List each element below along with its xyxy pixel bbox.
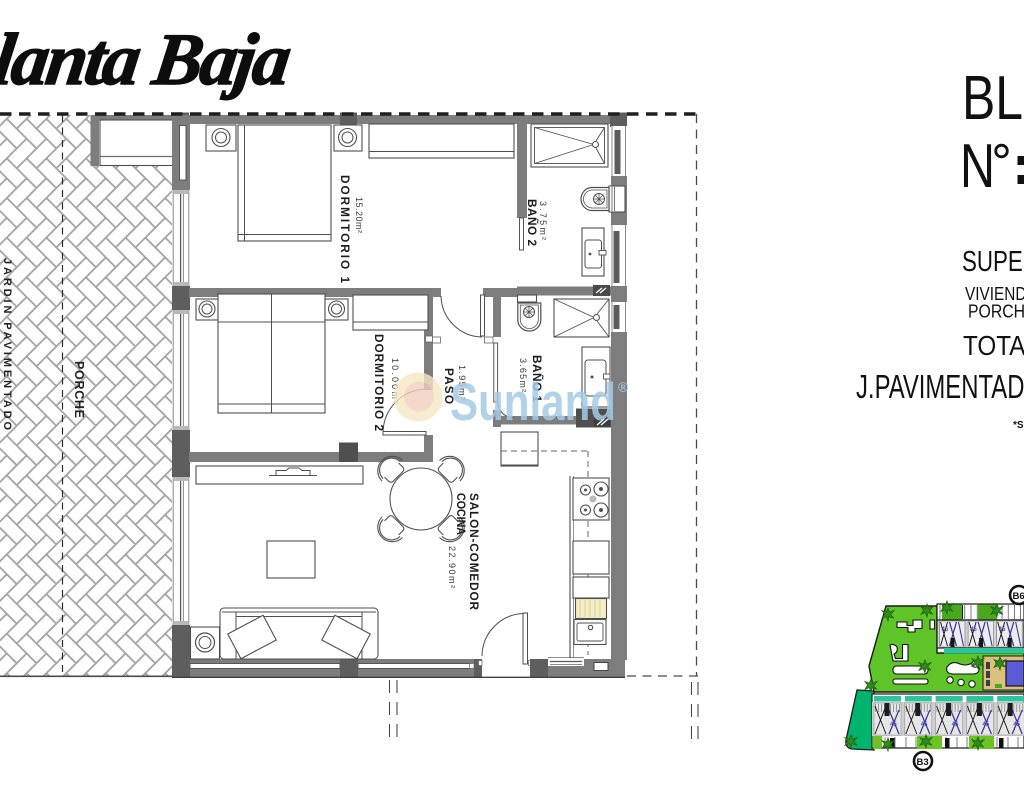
svg-text:B6: B6: [1013, 591, 1024, 602]
svg-text:22.90m²: 22.90m²: [447, 546, 457, 588]
svg-text:45: 45: [921, 722, 928, 728]
svg-text:J.PAVIMENTADO: J.PAVIMENTADO: [856, 368, 1024, 405]
svg-text:45: 45: [982, 722, 989, 728]
svg-text:45: 45: [952, 722, 959, 728]
svg-text:45: 45: [942, 627, 949, 633]
svg-text:45: 45: [970, 627, 977, 633]
svg-text:DORMITORIO 1: DORMITORIO 1: [338, 175, 352, 283]
svg-text:®: ®: [618, 379, 629, 395]
svg-text:COCINA: COCINA: [454, 493, 468, 535]
svg-text:JARDIN PAVIMENTADO: JARDIN PAVIMENTADO: [1, 258, 13, 430]
svg-text:SALON-COMEDOR: SALON-COMEDOR: [467, 493, 481, 610]
svg-text:15.20m²: 15.20m²: [354, 197, 364, 233]
svg-text:PORCHE: PORCHE: [72, 361, 86, 418]
svg-text:*S: *S: [1013, 420, 1024, 431]
svg-text:Sunland: Sunland: [450, 373, 616, 432]
svg-text:N: N: [960, 132, 995, 201]
svg-text:Planta Baja: Planta Baja: [0, 19, 295, 101]
svg-text:45: 45: [999, 627, 1006, 633]
svg-text:PORCHE:: PORCHE:: [968, 301, 1024, 322]
svg-text:B3: B3: [917, 757, 929, 768]
svg-text:TOTAL: TOTAL: [963, 330, 1024, 361]
svg-text:SUPERFICIES:: SUPERFICIES:: [962, 246, 1024, 278]
svg-text:BAÑO 2: BAÑO 2: [525, 199, 539, 246]
svg-text:BLOQUE: BLOQUE: [962, 64, 1024, 133]
svg-text:45: 45: [890, 722, 897, 728]
svg-text:45: 45: [1013, 722, 1020, 728]
svg-text:DORMITORIO 2: DORMITORIO 2: [372, 334, 386, 431]
